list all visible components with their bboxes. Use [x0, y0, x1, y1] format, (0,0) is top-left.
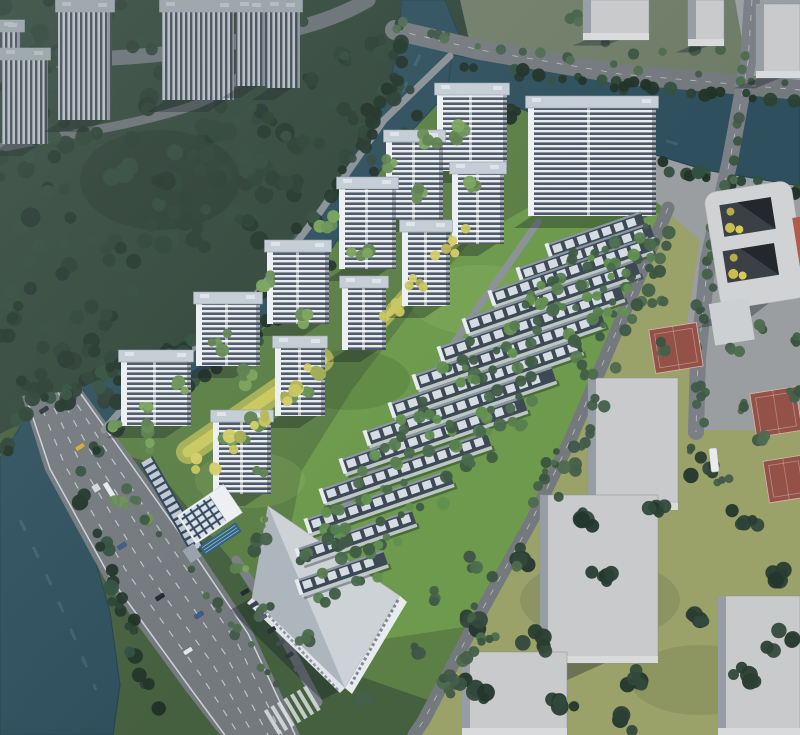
render-canvas [0, 0, 800, 735]
haze-overlay [0, 0, 800, 735]
aerial-development-render [0, 0, 800, 735]
atmosphere-haze [0, 0, 800, 735]
